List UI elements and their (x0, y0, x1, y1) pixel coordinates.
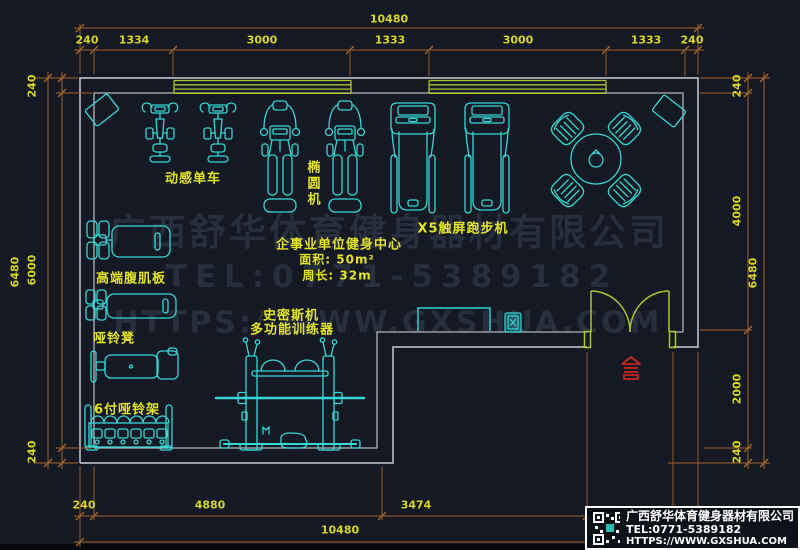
dim-right-seg: 4000 (731, 196, 744, 227)
label-ab-board: 高端腹肌板 (96, 268, 166, 287)
speaker-top-left-icon (85, 94, 119, 127)
dim-bottom-seg: 240 (73, 499, 96, 512)
dim-right-seg: 2000 (731, 374, 744, 405)
label-elliptical: 椭圆机 (303, 160, 322, 208)
dim-right-seg: 240 (731, 441, 744, 464)
water-dispenser-icon (505, 313, 521, 332)
dim-top-seg: 3000 (503, 34, 534, 47)
spin-bike-1 (142, 103, 178, 162)
dim-top-seg: 3000 (247, 34, 278, 47)
dim-top-seg: 1333 (631, 34, 662, 47)
dim-right-total: 6480 (747, 258, 760, 289)
label-dumbbell-bench: 哑铃凳 (93, 328, 135, 347)
dim-top-seg: 240 (76, 34, 99, 47)
spin-bike-2 (200, 103, 236, 162)
logo-company-name: 广西舒华体育健身器材有限公司 (626, 509, 794, 523)
window-band-left (174, 81, 351, 94)
window-band-right (429, 81, 606, 94)
table-with-chairs (549, 110, 644, 210)
room-info-perimeter: 周长: 32m (302, 267, 371, 284)
ab-board (87, 221, 170, 259)
dim-top-seg: 1333 (375, 34, 406, 47)
dim-left-total: 6480 (9, 257, 22, 288)
room-info-area: 面积: 50m² (299, 251, 374, 268)
dim-top-total: 10480 (370, 13, 408, 26)
dumbbell-bench-1 (86, 290, 176, 320)
speaker-top-right-icon (652, 95, 686, 128)
label-spin-bike: 动感单车 (165, 168, 221, 187)
dim-top-seg: 240 (681, 34, 704, 47)
smith-machine (216, 338, 364, 450)
logo-url: HTTPS://WWW.GXSHUA.COM (626, 536, 794, 548)
dim-left-seg: 6000 (26, 255, 39, 286)
entrance-marker-icon (622, 357, 640, 379)
elliptical-1 (261, 101, 300, 212)
dim-left-seg: 240 (26, 441, 39, 464)
treadmill-1 (391, 103, 435, 213)
label-smith-line2: 多功能训练器 (250, 319, 334, 338)
dim-bottom-seg: 4880 (195, 499, 226, 512)
dumbbell-bench-2 (91, 348, 178, 382)
label-treadmill: X5触屏跑步机 (417, 218, 508, 237)
dim-bottom-seg: 3474 (401, 499, 432, 512)
elliptical-2 (326, 101, 365, 212)
logo-tel: TEL:0771-5389182 (626, 523, 794, 536)
double-door (585, 291, 676, 348)
qr-code-icon (591, 510, 620, 547)
label-dumbbell-rack: 6付哑铃架 (94, 399, 160, 418)
dim-left-seg: 240 (26, 75, 39, 98)
dim-right-seg: 240 (731, 75, 744, 98)
dim-bottom-total: 10480 (321, 524, 359, 537)
wall-bench (418, 308, 490, 331)
dim-top-seg: 1334 (119, 34, 150, 47)
company-logo-box: 广西舒华体育健身器材有限公司 TEL:0771-5389182 HTTPS://… (585, 506, 800, 550)
treadmill-2 (465, 103, 509, 213)
floorplan-canvas: 广西舒华体育健身器材有限公司 TEL:0771-5389182 HTTPS://… (0, 0, 800, 550)
